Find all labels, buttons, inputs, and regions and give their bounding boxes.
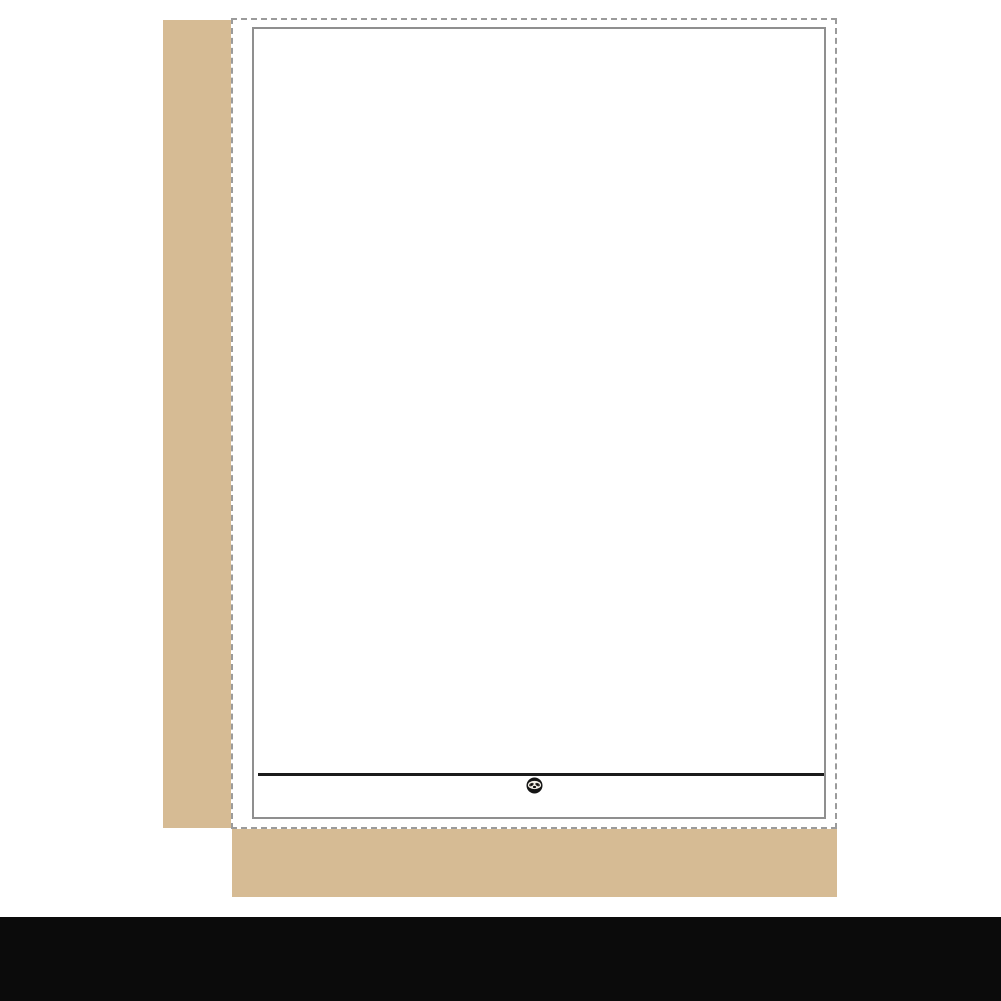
sheet-printed-border	[252, 27, 826, 819]
brand-banner	[0, 917, 1001, 1001]
product-photo	[0, 0, 1001, 1001]
left-ruler-strip	[163, 20, 232, 828]
logo-line2	[233, 774, 835, 794]
sticker-sheet	[231, 18, 837, 829]
bottom-ruler-strip	[232, 828, 837, 897]
sniggle-sloth-logo	[233, 774, 835, 794]
sloth-face-icon	[526, 777, 543, 794]
